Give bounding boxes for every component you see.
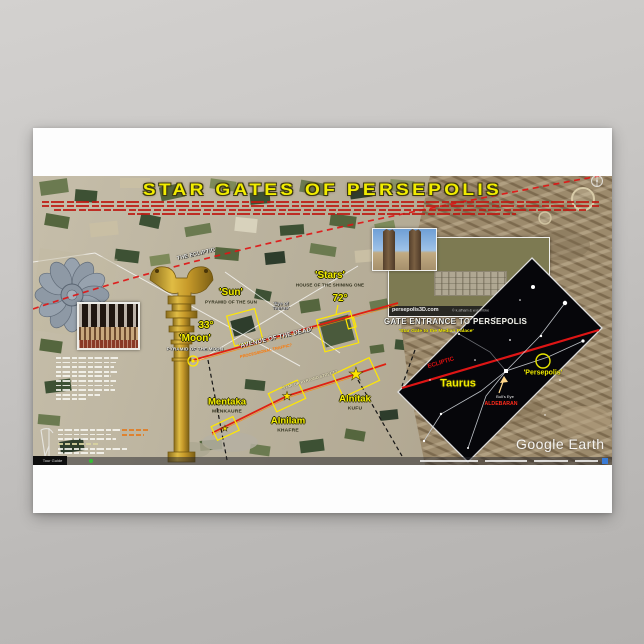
label-khafre: KHAFRE — [277, 428, 299, 433]
status-green-icon — [89, 459, 93, 463]
tour-guide-chip: Tour Guide — [33, 456, 67, 465]
poster-product-photo: ★ ★ ★ — [0, 0, 644, 644]
chart-label-taurus: Taurus — [440, 379, 476, 390]
photo-credit-owner: © k.afham & w.gambke — [452, 309, 489, 313]
status-text-segment — [575, 460, 598, 462]
label-stars: 'Stars' — [315, 271, 345, 281]
author-logo — [36, 426, 56, 460]
status-text-segment — [534, 460, 568, 462]
aldebaran-star — [504, 369, 508, 373]
label-angle-33: 33° — [198, 321, 213, 331]
label-pyramid-of-the-moon: PYRAMID OF THE MOON — [167, 347, 224, 352]
chart-label-bulls-eye: Bull's Eye — [496, 395, 514, 399]
label-house-of-shining-one: HOUSE OF THE SHINING ONE — [296, 283, 364, 288]
status-blue-icon — [602, 458, 608, 464]
label-alnitak: Alnitak — [339, 394, 371, 404]
chart-label-persepolis: 'Persepolis' — [524, 370, 563, 377]
star-alnilam-icon: ★ — [282, 389, 293, 403]
status-text-segment — [420, 460, 478, 462]
label-kufu: KUFU — [348, 406, 362, 411]
tour-guide-label: Tour Guide — [43, 458, 63, 463]
chart-label-tau: Tau — [450, 330, 457, 334]
label-mentaka: Mentaka — [208, 397, 246, 407]
taurus-star-chart — [398, 258, 602, 462]
star-alnitak-icon: ★ — [348, 364, 364, 384]
chart-label-aldebaran: ALDEBARAN — [484, 401, 517, 406]
label-eye-of-taurus: 'Eye of Taurus' — [273, 302, 290, 311]
label-moon: 'Moon' — [179, 334, 210, 344]
gate-entrance-title: GATE ENTRANCE TO PERSEPOLIS — [384, 318, 527, 326]
photo-credit: persepolis3D.com — [392, 307, 439, 312]
status-text-segment — [485, 460, 527, 462]
label-pyramid-of-the-sun: PYRAMID OF THE SUN — [205, 300, 257, 305]
google-earth-watermark: Google Earth — [516, 436, 605, 452]
label-menkaure: MENKAURE — [212, 409, 242, 414]
persepolis-column — [150, 267, 213, 462]
gate-entrance-subtitle: 'Star Gate to the Median Palace' — [399, 328, 474, 333]
label-sun: 'Sun' — [219, 288, 243, 298]
label-angle-72: 72° — [332, 294, 347, 304]
star-mentaka-icon: ★ — [221, 424, 228, 433]
label-alnilam: Alnilam — [271, 416, 305, 426]
poster-title: STAR GATES OF PERSEPOLIS — [0, 180, 644, 200]
